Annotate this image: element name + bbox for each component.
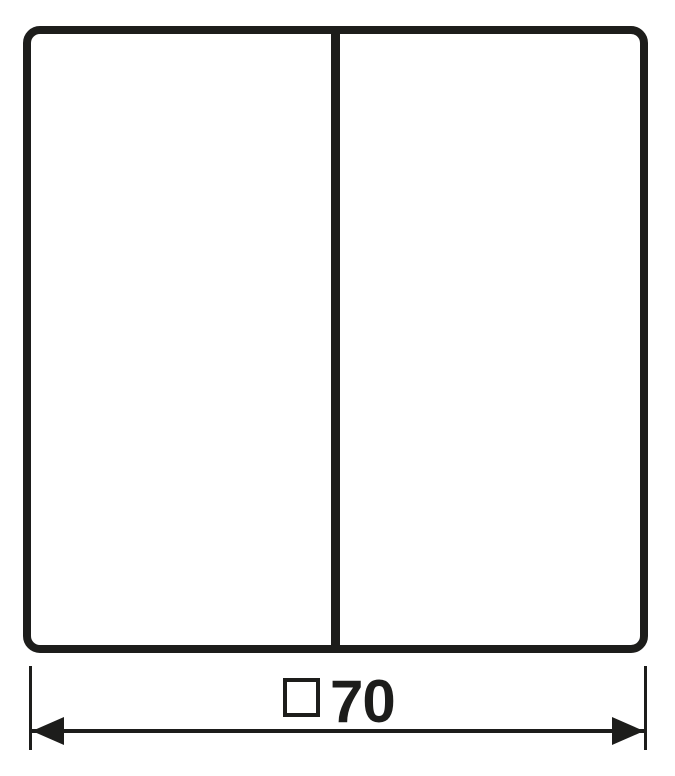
technical-drawing: 70	[0, 0, 675, 776]
center-divider-line	[331, 28, 340, 651]
dimension-extension-line-right	[644, 666, 647, 750]
dimension-value: 70	[330, 672, 395, 732]
dimension-arrow-right-icon	[612, 717, 644, 745]
dimension-arrow-left-icon	[32, 717, 64, 745]
square-symbol-icon	[283, 678, 320, 717]
